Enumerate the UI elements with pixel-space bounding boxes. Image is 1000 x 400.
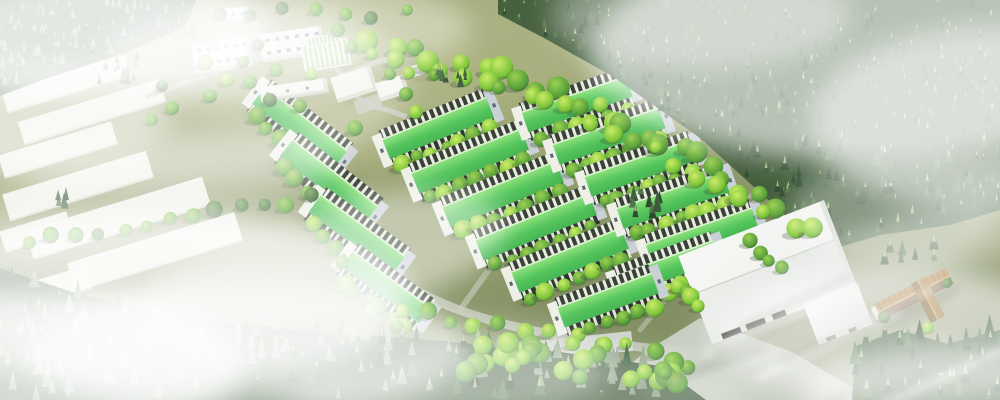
- scene-canvas: [0, 0, 1000, 400]
- aerial-site-rendering: [0, 0, 1000, 400]
